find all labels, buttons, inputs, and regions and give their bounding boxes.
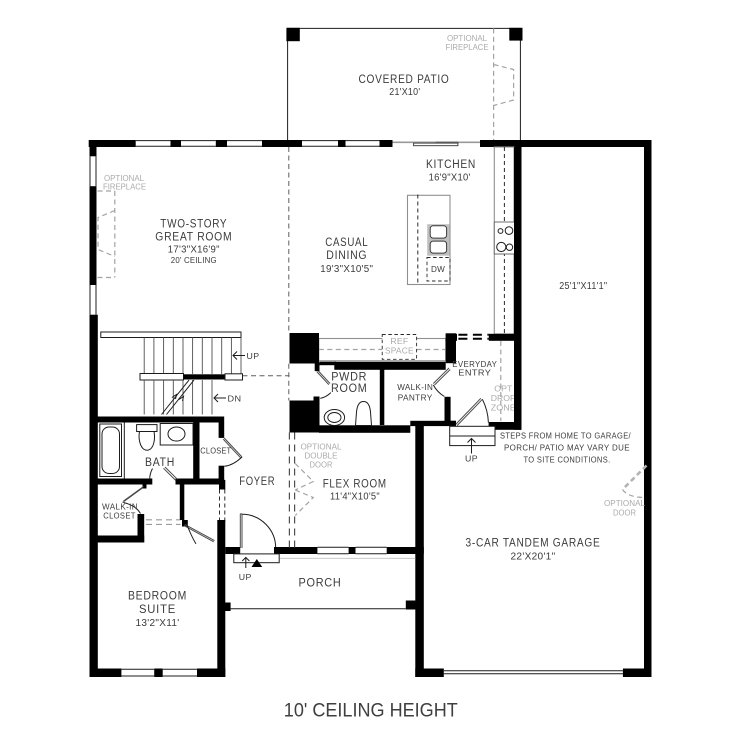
- svg-text:19'3"X10'5": 19'3"X10'5": [320, 264, 373, 275]
- svg-text:TWO-STORY: TWO-STORY: [160, 219, 227, 231]
- svg-text:CLOSET: CLOSET: [200, 447, 231, 456]
- svg-text:FIREPLACE: FIREPLACE: [103, 182, 146, 192]
- svg-text:PORCH/ PATIO MAY VARY DUE: PORCH/ PATIO MAY VARY DUE: [504, 443, 630, 453]
- svg-text:SUITE: SUITE: [139, 604, 176, 616]
- svg-text:25'1"X11'1": 25'1"X11'1": [559, 281, 607, 292]
- svg-text:KITCHEN: KITCHEN: [426, 159, 476, 171]
- svg-text:17'3"X16'9": 17'3"X16'9": [168, 245, 220, 256]
- svg-text:OPTIONAL: OPTIONAL: [604, 498, 645, 508]
- svg-text:COVERED PATIO: COVERED PATIO: [359, 74, 450, 86]
- svg-text:FOYER: FOYER: [239, 476, 275, 488]
- svg-text:UP: UP: [465, 454, 478, 464]
- svg-text:REF: REF: [390, 337, 408, 346]
- svg-text:ZONE: ZONE: [491, 403, 516, 413]
- svg-text:STEPS FROM HOME TO GARAGE/: STEPS FROM HOME TO GARAGE/: [500, 431, 631, 441]
- svg-text:PORCH: PORCH: [299, 576, 342, 590]
- svg-text:PWDR: PWDR: [331, 372, 367, 384]
- svg-text:DN: DN: [228, 394, 242, 404]
- svg-text:11'4"X10'5": 11'4"X10'5": [330, 492, 380, 503]
- svg-text:3-CAR TANDEM GARAGE: 3-CAR TANDEM GARAGE: [466, 538, 601, 550]
- svg-text:DROP: DROP: [491, 393, 516, 403]
- svg-text:PANTRY: PANTRY: [398, 393, 433, 403]
- svg-text:DW: DW: [431, 265, 445, 274]
- svg-text:FIREPLACE: FIREPLACE: [446, 42, 489, 52]
- svg-text:FLEX ROOM: FLEX ROOM: [323, 479, 387, 491]
- svg-text:OPT: OPT: [494, 384, 512, 394]
- svg-text:ENTRY: ENTRY: [458, 368, 491, 378]
- svg-text:10' CEILING HEIGHT: 10' CEILING HEIGHT: [284, 700, 458, 722]
- svg-text:CASUAL: CASUAL: [325, 237, 368, 249]
- svg-text:21'X10': 21'X10': [389, 87, 420, 98]
- svg-text:DOOR: DOOR: [613, 508, 636, 518]
- svg-text:UP: UP: [247, 351, 260, 361]
- svg-text:16'9"X10': 16'9"X10': [429, 173, 471, 184]
- svg-text:20' CEILING: 20' CEILING: [171, 256, 217, 265]
- svg-text:UP: UP: [239, 572, 252, 582]
- svg-text:ROOM: ROOM: [331, 383, 368, 395]
- svg-text:BATH: BATH: [145, 457, 175, 469]
- svg-text:DINING: DINING: [326, 250, 367, 262]
- svg-text:13'2"X11': 13'2"X11': [136, 618, 180, 629]
- svg-text:DOOR: DOOR: [310, 460, 333, 470]
- svg-text:BEDROOM: BEDROOM: [128, 591, 187, 603]
- svg-text:SPACE: SPACE: [385, 347, 414, 356]
- svg-text:CLOSET: CLOSET: [103, 511, 136, 521]
- svg-text:GREAT ROOM: GREAT ROOM: [155, 232, 232, 244]
- svg-text:22'X20'1": 22'X20'1": [511, 552, 556, 563]
- svg-text:WALK-IN: WALK-IN: [397, 382, 433, 392]
- svg-text:TO SITE CONDITIONS.: TO SITE CONDITIONS.: [524, 455, 611, 465]
